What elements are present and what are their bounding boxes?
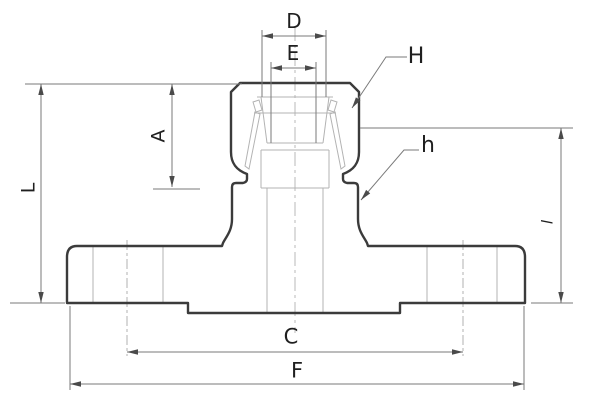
- flange-drawing-canvas: D E H h L A l C F: [0, 0, 600, 406]
- arrow-e-left: [271, 65, 282, 70]
- dim-label-A: A: [150, 130, 169, 143]
- dim-label-D: D: [286, 11, 301, 31]
- arrow-c-right: [452, 349, 463, 354]
- arrow-f-left: [70, 381, 81, 386]
- dimension-arrows: [38, 33, 563, 386]
- flange-section-drawing: [0, 0, 600, 406]
- socket-wall-left: [261, 97, 267, 143]
- dim-label-C: C: [284, 327, 299, 348]
- dim-label-E: E: [287, 43, 300, 63]
- dim-label-F: F: [291, 361, 303, 382]
- dim-label-L: L: [20, 183, 39, 194]
- cam-pivot-left: [253, 100, 262, 112]
- arrow-l-lower-top: [558, 128, 563, 139]
- arrow-d-left: [262, 33, 273, 38]
- dim-label-l: l: [541, 220, 556, 224]
- cam-arm-right: [330, 112, 345, 169]
- arrow-d-right: [315, 33, 326, 38]
- arrow-c-left: [127, 349, 138, 354]
- arrow-l-lower-bottom: [558, 292, 563, 303]
- cam-pivot-right: [328, 100, 337, 112]
- cam-arm-left: [245, 112, 260, 169]
- arrow-a-bottom: [169, 176, 174, 187]
- h-lower-leader-line: [361, 150, 419, 200]
- arrow-a-top: [169, 84, 174, 95]
- callout-label-H: H: [408, 46, 425, 68]
- arrow-l-upper-bottom: [38, 292, 43, 303]
- arrow-f-right: [513, 381, 524, 386]
- arrow-l-upper-top: [38, 84, 43, 95]
- callout-label-h: h: [421, 135, 435, 157]
- coupler-flange-outline: [67, 83, 525, 313]
- socket-wall-right: [323, 97, 329, 143]
- arrow-e-right: [305, 65, 316, 70]
